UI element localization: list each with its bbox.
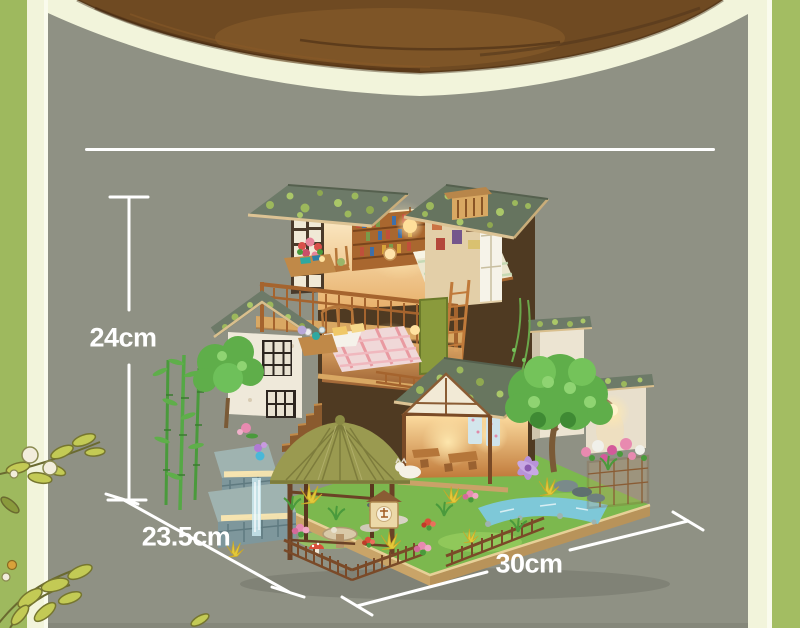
product-dimension-image: 24cm 23.5cm 30cm: [0, 0, 800, 628]
left-highlight-strip: [44, 0, 48, 628]
height-label: 24cm: [89, 323, 156, 354]
depth-label: 23.5cm: [142, 522, 231, 553]
bottom-edge-shade: [48, 623, 748, 628]
width-label: 30cm: [495, 549, 562, 580]
right-green-bar: [772, 0, 800, 628]
left-green-bar: [0, 0, 27, 628]
right-highlight-strip: [767, 0, 772, 628]
scene: [0, 0, 800, 628]
top-divider-line: [85, 148, 715, 151]
